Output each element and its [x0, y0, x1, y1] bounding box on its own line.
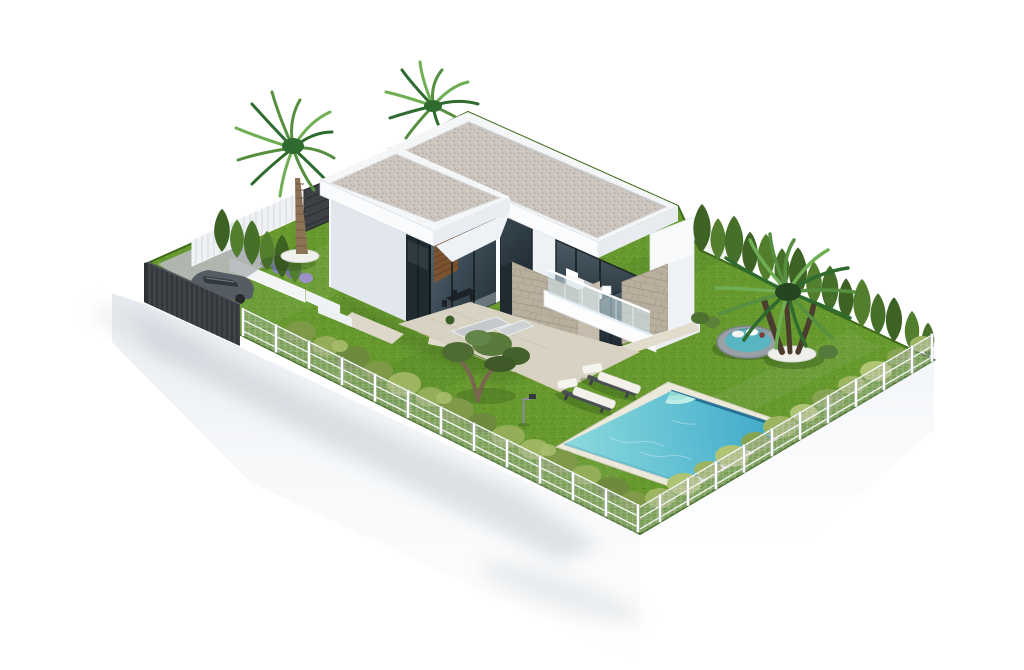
render-canvas — [0, 0, 1024, 670]
terrace-pot-plant — [446, 316, 455, 325]
dark-wall-end-cap — [144, 262, 148, 304]
garden-bush — [818, 345, 838, 359]
daybed-pillow — [732, 331, 744, 338]
ground-floor-wall-right — [668, 254, 694, 330]
daybed-accent-pillow — [759, 332, 765, 338]
villa-render — [0, 0, 1024, 670]
right-palm-crown-core — [775, 283, 801, 301]
palm-crown-core — [282, 138, 304, 154]
garden-bush — [691, 312, 709, 324]
back-left-boundary — [192, 92, 336, 283]
